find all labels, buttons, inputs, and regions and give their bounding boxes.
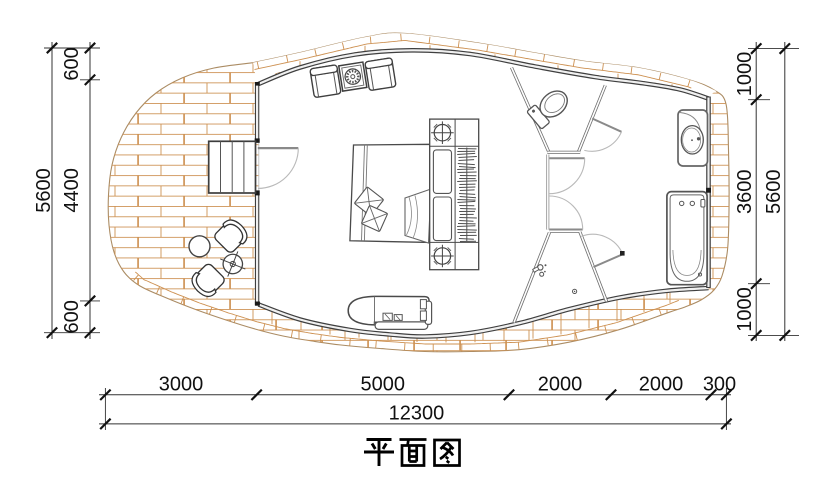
svg-text:5000: 5000 <box>361 374 406 396</box>
svg-text:300: 300 <box>703 374 736 396</box>
svg-text:1000: 1000 <box>734 52 756 97</box>
svg-text:4400: 4400 <box>61 168 83 213</box>
svg-text:3600: 3600 <box>734 169 756 214</box>
svg-text:2000: 2000 <box>639 374 684 396</box>
svg-text:2000: 2000 <box>538 374 583 396</box>
svg-text:5600: 5600 <box>33 168 55 213</box>
svg-text:12300: 12300 <box>389 403 445 425</box>
svg-text:600: 600 <box>61 300 83 333</box>
svg-text:5600: 5600 <box>763 169 785 214</box>
svg-text:3000: 3000 <box>159 374 204 396</box>
svg-text:1000: 1000 <box>734 287 756 332</box>
svg-text:600: 600 <box>61 47 83 80</box>
